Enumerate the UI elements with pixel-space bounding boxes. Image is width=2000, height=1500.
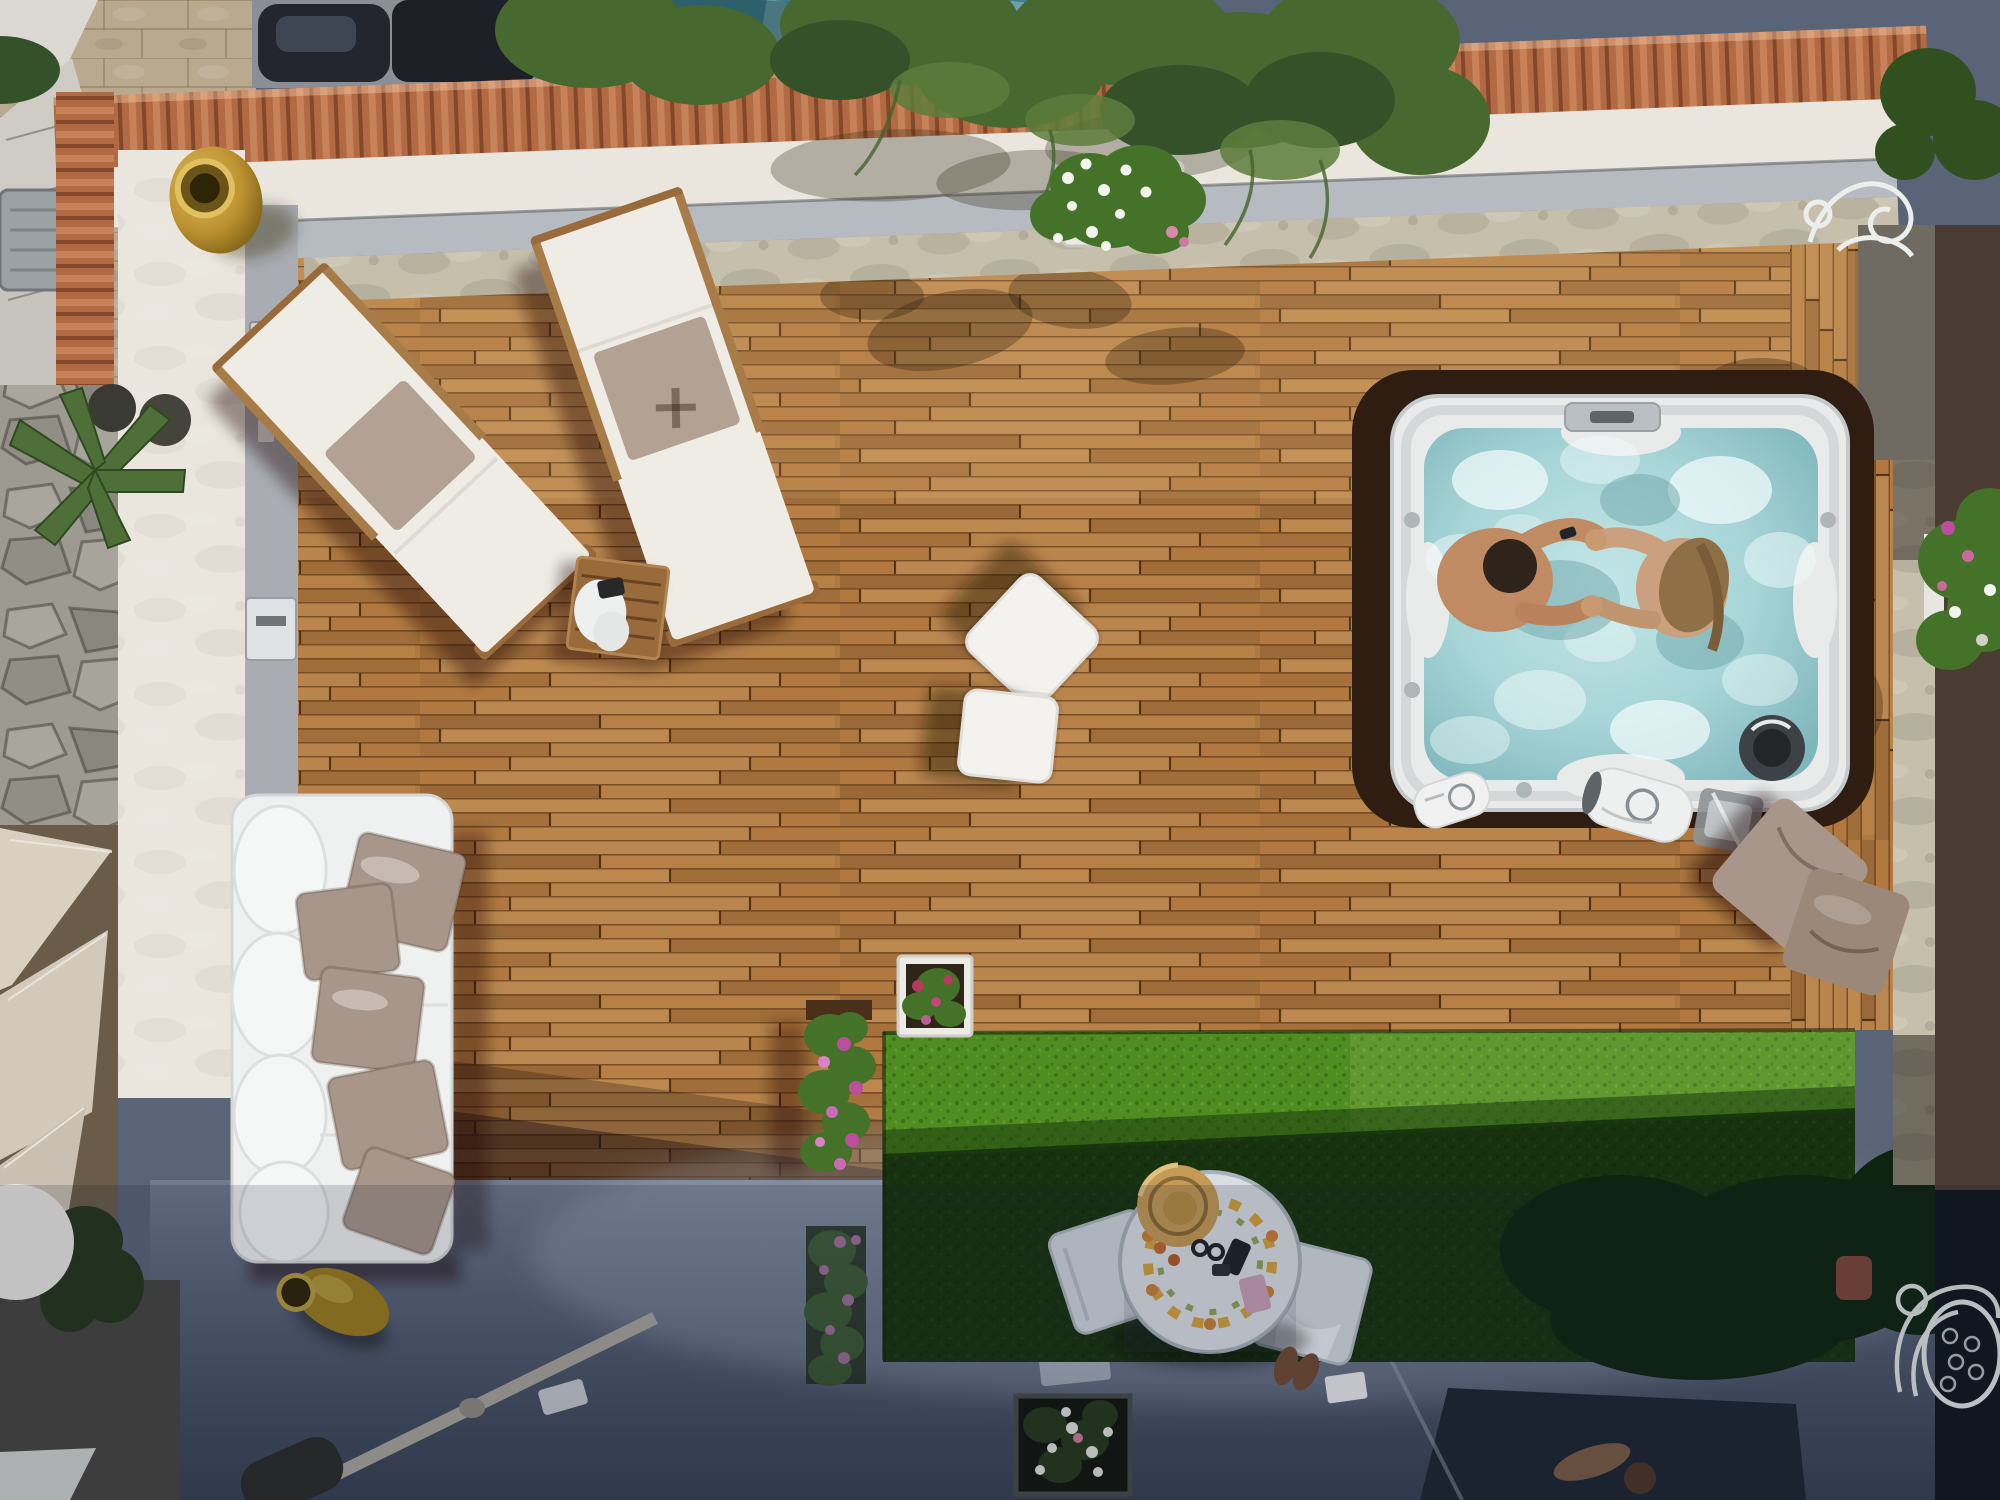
electrical-box-3 (246, 598, 296, 660)
right-dark-wall (1935, 225, 2000, 1190)
pouf-2-body (956, 687, 1061, 785)
woman-arm-upper (1600, 537, 1656, 548)
side-table (549, 555, 669, 673)
tub-speaker-inner (1753, 729, 1791, 767)
walkway-left-texture (118, 150, 245, 1098)
right-stone-shadow2 (1893, 1035, 1935, 1185)
electrical-box-slot (256, 616, 286, 626)
planter-top-pink-flower-2 (1179, 237, 1189, 247)
man-hair (1483, 539, 1537, 593)
held-hands-bottom (1581, 595, 1603, 617)
hot-tub (1352, 370, 1874, 828)
tub-control-display (1590, 411, 1634, 423)
rooftop-terrace-photo (0, 0, 2000, 1500)
pouf-cube-2 (919, 683, 1060, 790)
scene-canvas (0, 0, 2000, 1500)
terracotta-left-ribs (56, 92, 114, 388)
planter-top-pink-flower (1166, 226, 1178, 238)
car-windshield (276, 16, 356, 52)
deck-edge-planter (898, 956, 972, 1036)
held-hands-top (1585, 529, 1607, 551)
man-arm-lower (1525, 606, 1590, 616)
shadow-atmosphere (0, 1185, 2000, 1500)
plant-top-right-corner (1875, 48, 2000, 180)
